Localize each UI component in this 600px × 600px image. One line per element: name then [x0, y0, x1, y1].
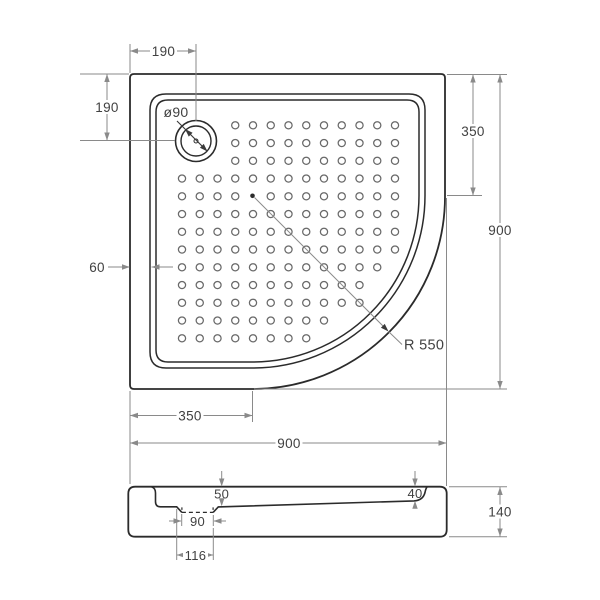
anti-slip-dot — [196, 246, 203, 253]
section-view: 50 40 90 116 — [128, 471, 514, 563]
anti-slip-dot — [285, 122, 292, 129]
anti-slip-dot — [214, 210, 221, 217]
anti-slip-dot — [338, 193, 345, 200]
anti-slip-dot — [214, 317, 221, 324]
anti-slip-dot — [356, 175, 363, 182]
anti-slip-dot — [320, 228, 327, 235]
anti-slip-dot — [338, 246, 345, 253]
anti-slip-dot — [267, 193, 274, 200]
anti-slip-dot — [214, 175, 221, 182]
section-outer-outline — [128, 487, 446, 537]
anti-slip-dot — [232, 299, 239, 306]
anti-slip-dot — [196, 335, 203, 342]
anti-slip-dot — [178, 264, 185, 271]
anti-slip-dot — [232, 281, 239, 288]
anti-slip-dot — [249, 317, 256, 324]
dim-rim-60: 60 — [89, 260, 173, 275]
anti-slip-dot — [249, 281, 256, 288]
anti-slip-dot — [285, 157, 292, 164]
anti-slip-dot — [267, 122, 274, 129]
anti-slip-dot — [214, 281, 221, 288]
anti-slip-dot — [356, 157, 363, 164]
anti-slip-dot — [320, 317, 327, 324]
dim-bottom-350-label: 350 — [178, 409, 201, 424]
anti-slip-dot — [178, 246, 185, 253]
anti-slip-dot — [196, 264, 203, 271]
dim-section-140: 140 — [449, 487, 514, 537]
anti-slip-dot — [338, 122, 345, 129]
anti-slip-dot — [267, 317, 274, 324]
dim-rim-60-label: 60 — [89, 260, 105, 275]
anti-slip-dot — [249, 264, 256, 271]
anti-slip-dot — [374, 246, 381, 253]
anti-slip-dot — [338, 299, 345, 306]
anti-slip-dot — [232, 228, 239, 235]
anti-slip-dot — [196, 193, 203, 200]
anti-slip-dot — [320, 193, 327, 200]
dim-left-190-label: 190 — [95, 100, 118, 115]
anti-slip-dot — [232, 210, 239, 217]
anti-slip-dot — [178, 281, 185, 288]
anti-slip-dot — [214, 193, 221, 200]
anti-slip-dot — [338, 175, 345, 182]
anti-slip-dot — [249, 157, 256, 164]
drain-diameter-label: ø90 — [163, 104, 188, 120]
anti-slip-dot — [356, 228, 363, 235]
anti-slip-dot — [356, 193, 363, 200]
anti-slip-dot — [356, 246, 363, 253]
anti-slip-dot — [249, 335, 256, 342]
anti-slip-dot — [303, 335, 310, 342]
anti-slip-dot — [320, 281, 327, 288]
dim-right-350: 350 — [447, 75, 507, 196]
dim-section-50: 50 — [214, 471, 229, 506]
anti-slip-dot — [391, 210, 398, 217]
radius-leader-tail — [389, 332, 403, 345]
corner-radius-callout: R 550 — [250, 194, 444, 354]
anti-slip-dot — [232, 175, 239, 182]
anti-slip-dot — [356, 264, 363, 271]
anti-slip-dot — [214, 299, 221, 306]
anti-slip-dot — [178, 175, 185, 182]
anti-slip-dot — [232, 246, 239, 253]
anti-slip-dot — [285, 335, 292, 342]
anti-slip-dot — [356, 281, 363, 288]
anti-slip-dot — [267, 139, 274, 146]
anti-slip-dot — [249, 122, 256, 129]
anti-slip-dot — [391, 157, 398, 164]
anti-slip-dot — [338, 264, 345, 271]
anti-slip-dot — [285, 175, 292, 182]
dim-section-90-label: 90 — [190, 514, 205, 529]
anti-slip-dot — [267, 175, 274, 182]
anti-slip-dot — [267, 281, 274, 288]
anti-slip-dot — [303, 122, 310, 129]
anti-slip-dot — [320, 157, 327, 164]
anti-slip-dot — [196, 299, 203, 306]
anti-slip-dot — [285, 264, 292, 271]
anti-slip-dot — [320, 246, 327, 253]
anti-slip-dot — [356, 122, 363, 129]
anti-slip-dot — [267, 228, 274, 235]
dim-right-350-label: 350 — [461, 124, 484, 139]
anti-slip-dot — [214, 228, 221, 235]
anti-slip-dot — [391, 122, 398, 129]
dim-section-50-label: 50 — [214, 487, 229, 502]
anti-slip-dot — [178, 317, 185, 324]
dim-section-116-label: 116 — [185, 548, 207, 563]
anti-slip-dot — [338, 139, 345, 146]
anti-slip-dot — [196, 228, 203, 235]
anti-slip-dot — [285, 281, 292, 288]
anti-slip-dot — [267, 157, 274, 164]
anti-slip-dot — [356, 139, 363, 146]
anti-slip-dot — [303, 193, 310, 200]
anti-slip-dot — [303, 317, 310, 324]
technical-drawing: ø90 R 550 190 190 — [0, 0, 600, 600]
dim-bottom-900-label: 900 — [277, 436, 300, 451]
dim-top-190-label: 190 — [152, 44, 175, 59]
dim-bottom-350: 350 — [130, 391, 253, 424]
anti-slip-dot — [285, 210, 292, 217]
section-drain-recess-hidden — [182, 507, 213, 512]
anti-slip-dot — [320, 122, 327, 129]
anti-slip-dot — [232, 157, 239, 164]
dim-section-140-label: 140 — [488, 505, 511, 520]
anti-slip-dot — [267, 335, 274, 342]
anti-slip-dot — [196, 317, 203, 324]
anti-slip-dot — [249, 299, 256, 306]
dim-right-900-label: 900 — [488, 223, 511, 238]
anti-slip-dot — [338, 210, 345, 217]
anti-slip-dot — [391, 228, 398, 235]
corner-radius-label: R 550 — [404, 338, 444, 354]
anti-slip-dot — [232, 139, 239, 146]
anti-slip-dot — [285, 139, 292, 146]
anti-slip-dot — [338, 157, 345, 164]
anti-slip-dot — [391, 175, 398, 182]
anti-slip-dot — [374, 193, 381, 200]
radius-center-dot — [250, 194, 255, 199]
anti-slip-dot — [285, 299, 292, 306]
drawing-canvas: ø90 R 550 190 190 — [0, 0, 600, 600]
anti-slip-dot — [374, 264, 381, 271]
anti-slip-dot — [320, 210, 327, 217]
anti-slip-dot — [285, 317, 292, 324]
anti-slip-dot — [196, 210, 203, 217]
anti-slip-dot — [338, 228, 345, 235]
anti-slip-dot — [267, 299, 274, 306]
anti-slip-dot — [303, 264, 310, 271]
anti-slip-dot — [214, 246, 221, 253]
anti-slip-dot — [391, 193, 398, 200]
section-basin-profile — [152, 487, 427, 512]
anti-slip-dot — [178, 299, 185, 306]
anti-slip-dot — [356, 210, 363, 217]
anti-slip-dot — [303, 228, 310, 235]
anti-slip-dot — [285, 246, 292, 253]
anti-slip-dot — [391, 139, 398, 146]
anti-slip-dot — [214, 264, 221, 271]
anti-slip-dot — [391, 246, 398, 253]
anti-slip-dot — [374, 122, 381, 129]
anti-slip-dot — [178, 335, 185, 342]
anti-slip-dot — [232, 317, 239, 324]
anti-slip-dot — [285, 193, 292, 200]
dim-section-90: 90 — [169, 514, 226, 529]
drain: ø90 — [163, 104, 216, 162]
anti-slip-dot — [232, 264, 239, 271]
anti-slip-dot — [232, 193, 239, 200]
anti-slip-dot — [249, 228, 256, 235]
anti-slip-dot — [374, 139, 381, 146]
anti-slip-dot — [196, 281, 203, 288]
anti-slip-dot — [214, 335, 221, 342]
anti-slip-dot — [320, 139, 327, 146]
anti-slip-dot — [249, 175, 256, 182]
anti-slip-dot — [267, 246, 274, 253]
anti-slip-dot — [320, 175, 327, 182]
anti-slip-dot — [320, 299, 327, 306]
radius-leader-line — [255, 198, 388, 331]
anti-slip-dot — [303, 299, 310, 306]
anti-slip-dot — [249, 210, 256, 217]
anti-slip-dot — [374, 228, 381, 235]
anti-slip-dot — [303, 175, 310, 182]
anti-slip-dot — [232, 335, 239, 342]
anti-slip-dot — [303, 139, 310, 146]
anti-slip-dot — [267, 264, 274, 271]
anti-slip-dot — [178, 193, 185, 200]
anti-slip-dot — [249, 246, 256, 253]
dim-right-900: 900 — [254, 75, 514, 390]
anti-slip-dot — [196, 175, 203, 182]
anti-slip-dot — [178, 228, 185, 235]
anti-slip-dot — [374, 210, 381, 217]
anti-slip-dot — [232, 122, 239, 129]
anti-slip-dot — [303, 281, 310, 288]
anti-slip-dot — [374, 175, 381, 182]
anti-slip-dot — [303, 157, 310, 164]
anti-slip-dot — [303, 210, 310, 217]
dim-section-40-label: 40 — [407, 486, 422, 501]
dim-section-40: 40 — [407, 471, 422, 509]
top-view: ø90 R 550 190 190 — [80, 44, 514, 486]
anti-slip-dot — [178, 210, 185, 217]
anti-slip-dot — [249, 139, 256, 146]
dim-left-190: 190 — [80, 74, 175, 141]
anti-slip-dot — [374, 157, 381, 164]
